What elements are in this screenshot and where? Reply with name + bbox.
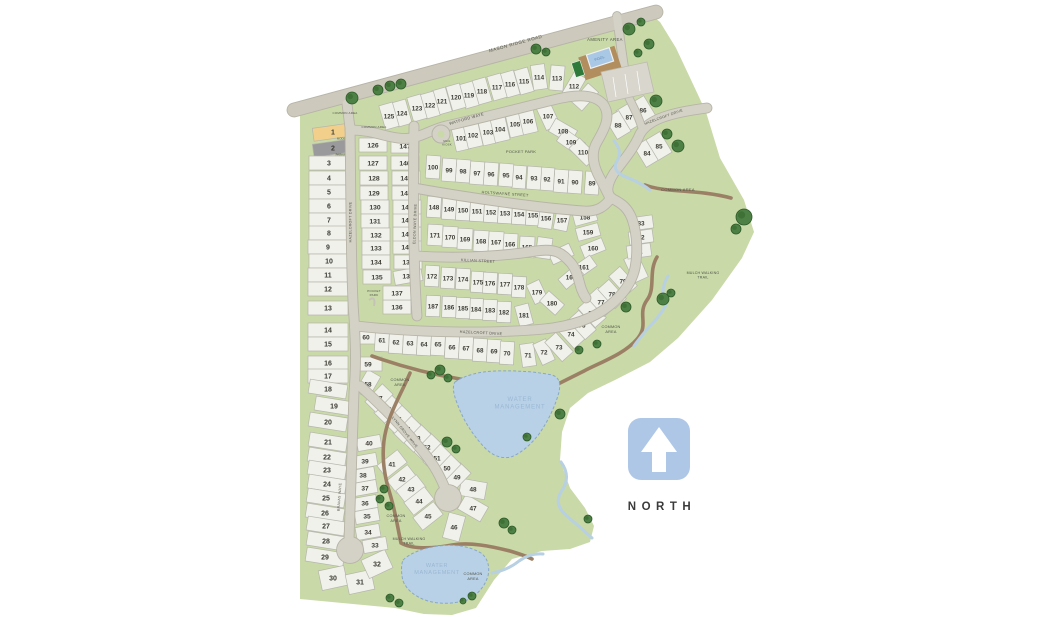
area-label: COMMON AREA	[361, 125, 386, 129]
lot-number: 106	[523, 118, 534, 125]
lot-number: 33	[371, 542, 379, 549]
lot-number: 44	[415, 498, 423, 505]
lot-number: 47	[469, 505, 477, 512]
area-label: COMMON	[602, 325, 621, 329]
lot-number: 123	[412, 105, 423, 112]
lot-number: 150	[458, 207, 469, 214]
tree-icon-shade	[428, 372, 432, 376]
lot-number: 107	[543, 113, 554, 120]
tree-icon-shade	[635, 50, 639, 54]
tree-icon-shade	[387, 595, 391, 599]
lot-number: 32	[373, 561, 381, 568]
lot-number: 121	[437, 98, 448, 105]
lot-number: 178	[514, 284, 525, 291]
lot-number: 40	[365, 440, 373, 447]
area-label: COMMON	[387, 514, 406, 518]
lot-number: 94	[515, 174, 523, 181]
area-label: MULCH WALKING	[687, 271, 720, 275]
tree-icon-shade	[396, 600, 400, 604]
lot-number: 62	[392, 339, 400, 346]
tree-icon-shade	[652, 97, 657, 102]
lot-number: 174	[458, 276, 469, 283]
lot-number: 35	[363, 513, 371, 520]
tree-icon-shade	[576, 347, 580, 351]
lot-number: 170	[445, 234, 456, 241]
lot-number: 109	[566, 139, 577, 146]
lot-number: 155	[528, 212, 539, 219]
tree-icon-shade	[348, 94, 353, 99]
tree-icon-shade	[732, 226, 737, 231]
lot-number: 95	[502, 172, 510, 179]
site-plan-svg: 1MODEL2PARKING34567891011121314151617181…	[0, 0, 1054, 617]
area-label: COMMON	[464, 572, 483, 576]
lot-number: 14	[324, 327, 332, 334]
culdesac	[337, 537, 363, 563]
lot-number: 38	[359, 472, 367, 479]
lot-number: 59	[364, 361, 372, 368]
lot-number: 10	[325, 258, 333, 265]
area-label: MULCH WALKING	[393, 537, 426, 541]
area-label: AMENITY AREA	[587, 37, 623, 42]
lot-number: 19	[330, 403, 338, 410]
lot-number: 108	[558, 128, 569, 135]
lot-number: 7	[327, 217, 331, 224]
lot-number: 184	[471, 306, 482, 313]
lot-number: 102	[468, 132, 479, 139]
lot-number: 16	[324, 360, 332, 367]
lot-number: 90	[571, 179, 579, 186]
lot-number: 172	[427, 273, 438, 280]
lot-number: 29	[321, 554, 329, 561]
tree-icon-shade	[453, 446, 457, 450]
lot-number: 1	[331, 129, 335, 136]
lot-number: 4	[327, 175, 331, 182]
lot-number: 31	[356, 579, 364, 586]
lot-number: 84	[643, 150, 651, 157]
area-label: PARK	[370, 293, 379, 297]
lot-number: 136	[391, 304, 403, 311]
lot-number: 118	[477, 88, 488, 95]
lot-number: 101	[456, 135, 467, 142]
area-label: MANAGEMENT	[494, 405, 545, 411]
lot-number: 110	[578, 149, 589, 156]
lot-number: 128	[368, 175, 380, 182]
lot-number: 66	[448, 344, 456, 351]
lot-number: 154	[514, 211, 525, 218]
lot-number: 3	[327, 160, 331, 167]
lot-number: 91	[557, 178, 565, 185]
tree-icon-shade	[668, 290, 672, 294]
tree-icon-shade	[645, 41, 650, 46]
lot-number: 100	[428, 164, 439, 171]
lot-number: 97	[473, 170, 481, 177]
lot-number: 36	[361, 500, 369, 507]
lot-number: 175	[473, 279, 484, 286]
lot-number: 105	[510, 121, 521, 128]
lot-number: 69	[490, 348, 498, 355]
lot-number: 30	[329, 575, 337, 582]
lot-number: 5	[327, 189, 331, 196]
lot-number: 23	[323, 467, 331, 474]
lot-number: 25	[322, 495, 330, 502]
lot-number: 148	[429, 204, 440, 211]
tree-icon-shade	[738, 211, 745, 218]
tree-icon-shade	[585, 516, 589, 520]
lot-number: 134	[370, 259, 382, 266]
area-label: AREA	[390, 519, 401, 523]
lot-number: 120	[451, 94, 462, 101]
area-label: TRAIL	[403, 542, 414, 546]
lot-number: 176	[485, 280, 496, 287]
lot-number: 85	[655, 143, 663, 150]
lot-number: 87	[625, 114, 633, 121]
lot-number: 72	[540, 349, 548, 356]
area-label: KIOSK	[442, 143, 452, 147]
lot-number: 135	[371, 274, 383, 281]
lot-number: 74	[567, 331, 575, 338]
lot-number: 124	[397, 110, 408, 117]
lot-number: 12	[324, 286, 332, 293]
lot-number: 24	[323, 481, 331, 488]
lot-number: 99	[445, 167, 453, 174]
lot-number: 50	[443, 465, 451, 472]
lot-number: 166	[505, 241, 516, 248]
lot-number: 117	[492, 84, 503, 91]
lot-number: 173	[443, 275, 454, 282]
lot-number: 160	[588, 245, 599, 252]
area-label: WATER	[508, 397, 533, 403]
lot-number: 133	[370, 245, 382, 252]
lot-number: 92	[543, 176, 551, 183]
lot-number: 60	[362, 334, 370, 341]
lot-number: 104	[495, 126, 506, 133]
tree-icon-shade	[524, 434, 528, 438]
lot-number: 64	[420, 341, 428, 348]
lot-number: 179	[532, 289, 543, 296]
lot-number: 22	[323, 454, 331, 461]
tree-icon-shade	[381, 486, 385, 490]
lot-number: 98	[459, 168, 467, 175]
lot-number: 48	[469, 486, 477, 493]
lot-number: 169	[460, 236, 471, 243]
tree-icon-shade	[436, 367, 441, 372]
lot-number: 15	[324, 341, 332, 348]
lot-number: 37	[361, 485, 369, 492]
area-label: AREA	[467, 577, 478, 581]
tree-icon-shade	[500, 520, 505, 525]
tree-icon-shade	[674, 142, 679, 147]
lot-number: 70	[503, 350, 511, 357]
lot-number: 2	[331, 145, 335, 152]
lot-number: 156	[541, 215, 552, 222]
street-name-label: HAZELCROFT DRIVE	[349, 201, 353, 242]
lot-number: 125	[384, 113, 395, 120]
lot-number: 131	[369, 218, 381, 225]
area-label: TRAIL	[697, 276, 708, 280]
lot-number: 149	[444, 206, 455, 213]
area-label: MANAGEMENT	[414, 570, 459, 576]
tree-icon-shade	[638, 19, 642, 23]
lot-number: 71	[524, 352, 532, 359]
lot-number: 115	[519, 78, 530, 85]
lot-number: 151	[472, 208, 483, 215]
tree-icon-shade	[622, 304, 627, 309]
lot-number: 49	[453, 474, 461, 481]
lot-number: 17	[324, 373, 332, 380]
lot-number: 42	[398, 476, 406, 483]
lot-number: 122	[425, 102, 436, 109]
north-arrow: NORTH	[628, 418, 696, 513]
culdesac	[435, 485, 461, 511]
area-label: COMMON	[391, 378, 410, 382]
area-label: COMMON AREA	[661, 187, 695, 192]
tree-icon-shade	[469, 593, 473, 597]
tree-icon-shade	[443, 439, 448, 444]
tree-icon-shade	[397, 81, 402, 86]
lot-number: 20	[324, 419, 332, 426]
lot-number: 63	[406, 340, 414, 347]
lot-number: 45	[424, 513, 432, 520]
lot-number: 61	[378, 337, 386, 344]
tree-icon-shade	[509, 527, 513, 531]
lot-number: 34	[364, 529, 372, 536]
area-label: POCKET PARK	[506, 149, 536, 154]
lot-number: 113	[552, 75, 563, 82]
tree-icon-shade	[556, 411, 561, 416]
lot-number: 28	[322, 538, 330, 545]
lot-number: 8	[327, 230, 331, 237]
tree-icon-shade	[377, 496, 381, 500]
lot-number: 43	[407, 486, 415, 493]
lot-number: 137	[391, 290, 403, 297]
tree-icon-shade	[374, 87, 379, 92]
tree-icon-shade	[659, 295, 664, 300]
lot-number: 21	[324, 439, 332, 446]
community-site-map: 1MODEL2PARKING34567891011121314151617181…	[0, 0, 1054, 617]
tree-icon-shade	[445, 375, 449, 379]
lot-number: 18	[324, 386, 332, 393]
lot-number: 132	[370, 232, 382, 239]
tree-icon-shade	[386, 83, 391, 88]
tree-icon-shade	[386, 503, 390, 507]
lot-number: 181	[519, 312, 530, 319]
lot-number: 11	[324, 272, 332, 279]
tree-icon-shade	[625, 25, 630, 30]
lot-number: 6	[327, 203, 331, 210]
lot-number: 167	[491, 239, 502, 246]
lot-number: 152	[486, 209, 497, 216]
lot-number: 46	[450, 524, 458, 531]
area-label: AREA	[394, 383, 405, 387]
area-label: WATER	[426, 563, 448, 569]
lot-number: 186	[444, 304, 455, 311]
lot-number: 177	[500, 281, 511, 288]
lot-number: 67	[462, 345, 470, 352]
lot-number: 153	[500, 210, 511, 217]
lot-number: 88	[614, 122, 622, 129]
lot-number: 65	[434, 341, 442, 348]
lot-number: 187	[428, 303, 439, 310]
lot-number: 116	[505, 81, 516, 88]
area-label: COMMON AREA	[332, 111, 357, 115]
north-label: NORTH	[628, 501, 696, 513]
lot-number: 9	[326, 244, 330, 251]
lot-number: 41	[388, 461, 396, 468]
tree-icon-shade	[532, 46, 537, 51]
tree-icon-shade	[543, 49, 547, 53]
tree-icon-shade	[594, 341, 598, 345]
area-label: AREA	[605, 330, 616, 334]
lot-number: 68	[476, 347, 484, 354]
lot-number: 119	[464, 92, 475, 99]
lot-number: 93	[530, 175, 538, 182]
lot-number: 103	[483, 129, 494, 136]
lot-number: 159	[583, 229, 594, 236]
lot-number: 26	[321, 510, 329, 517]
lot-number: 130	[369, 204, 381, 211]
lot-number: 180	[547, 300, 558, 307]
lot-number: 126	[367, 142, 379, 149]
lot-number: 182	[499, 309, 510, 316]
lot-number: 168	[476, 238, 487, 245]
lot-number: 129	[368, 190, 380, 197]
lot-number: 13	[324, 305, 332, 312]
lot-number: 127	[367, 160, 379, 167]
tree-icon-shade	[461, 599, 464, 602]
lot-number: 27	[322, 523, 330, 530]
lot-number: 112	[569, 83, 580, 90]
lot-number: 157	[557, 217, 568, 224]
lot-number: 96	[487, 171, 495, 178]
lot-number: 89	[588, 180, 596, 187]
lot-number: 183	[485, 307, 496, 314]
lot-number: 39	[361, 458, 369, 465]
lot-number: 185	[458, 305, 469, 312]
lot-number: 171	[430, 232, 441, 239]
tree-icon-shade	[663, 131, 668, 136]
roundabout-island	[438, 131, 445, 138]
lot-number: 114	[534, 74, 545, 81]
lot-number: 73	[555, 344, 563, 351]
